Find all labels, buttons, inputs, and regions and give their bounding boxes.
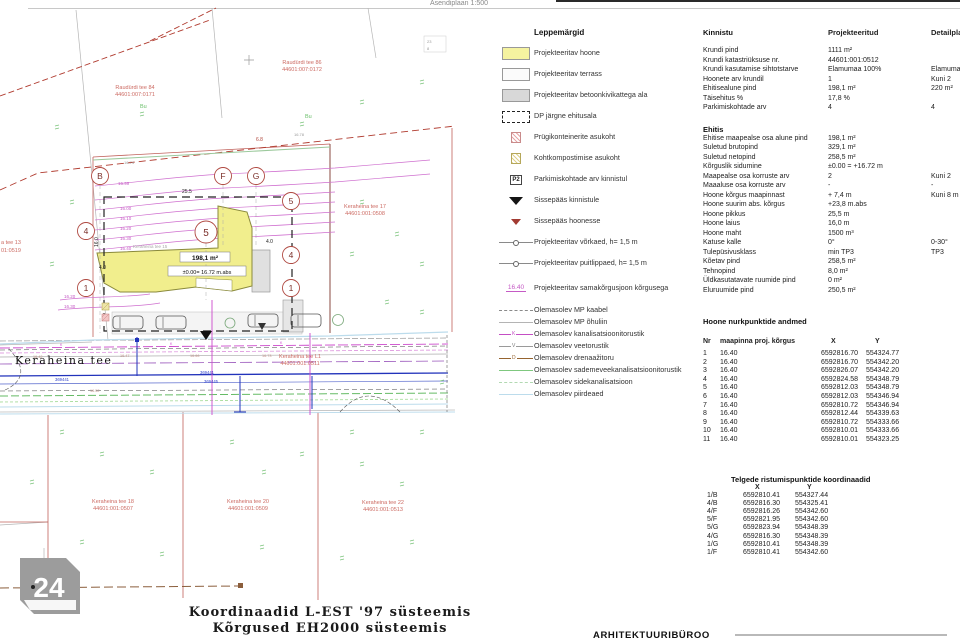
stamp-rule-line [735,634,947,636]
parcel-keraheina13-cad: 01:0519 [1,248,21,254]
kinnistu-header: Kinnistu Projekteeritud Detailplaneering [703,28,960,38]
compost-symbol [511,153,521,164]
building-area-label: 198,1 m² [192,255,219,262]
legend-item: Projekteeritav puitlippaed, h= 1,5 m [498,257,703,270]
sheet-number: 24 [33,572,65,603]
svg-text:K: K [170,342,173,346]
ehitis-row: Hoone pikkus 25,5 m [703,210,960,220]
parcel-keraheina20-cad: 44601:001:0509 [228,506,268,512]
corner-point-row: 8 16.40 6592812.44 554339.63 [703,410,960,419]
street-name-label: Keraheina tee [15,354,112,367]
ehitis-row: Kõetav pind 258,5 m² [703,257,960,267]
axis-label-5-center: 5 [203,228,209,239]
corner-point-row: 7 16.40 6592810.72 554346.94 [703,402,960,411]
legend-item: DP järgne ehitusala [498,110,703,123]
svg-text:4.0: 4.0 [266,239,273,245]
coordinate-system-note: Koordinaadid L-EST '97 süsteemis Kõrguse… [130,605,530,637]
ehitis-row: Hoone kõrgus maapinnast + 7,4 m Kuni 8 m [703,191,960,201]
axis-points-title: Telgede ristumispunktide koordinaadid [731,475,960,484]
axis-point-row: 4/B 6592816.30 554325.41 [703,500,960,508]
corner-point-row: 3 16.40 6592826.07 554342.20 [703,367,960,376]
axis-label-4: 4 [289,250,294,260]
building-entrance-symbol [511,219,521,225]
building-entrance-notch [196,278,232,291]
legend-item: K Olemasolev kanalisatsioonitorustik [498,330,703,339]
ehitis-row: Maapealse osa korruste arv 2 Kuni 2 [703,172,960,182]
parcel-keraheina22-cad: 44601:001:0513 [363,507,403,513]
legend-item: V Olemasolev veetorustik [498,342,703,351]
site-parcel-label: Keraheina tee 15 [133,244,168,249]
svg-text:16.0: 16.0 [94,237,100,247]
svg-text:16.78: 16.78 [294,132,305,137]
ehitis-row: Üldkasutatavate ruumide pind 0 m² [703,276,960,286]
svg-text:369441: 369441 [200,370,215,375]
parcel-keraheina17-name: Keraheina tee 17 [344,204,386,210]
axis-label-5: 5 [289,196,294,206]
corner-point-row: 5 16.40 6592812.03 554348.79 [703,384,960,393]
ehitis-row: Maaaluse osa korruste arv - - [703,181,960,191]
axis-point-row: 5/F 6592821.95 554342.60 [703,516,960,524]
axis-label-1-left: 1 [84,283,89,293]
kinnistu-row: Täisehitus % 17,8 % [703,94,960,104]
drainage-node [238,583,243,588]
property-data-panel: Kinnistu Projekteeritud Detailplaneering… [703,28,960,557]
ehitis-row: Ehitise maapealse osa alune pind 198,1 m… [703,134,960,144]
axis-label-4-left: 4 [84,226,89,236]
legend-item: Projekteeritav hoone [498,47,703,60]
svg-text:16.42: 16.42 [33,355,43,359]
svg-text:16.74: 16.74 [124,160,135,165]
parcel-keraheina17-cad: 44601:001:0508 [345,211,385,217]
sheet-number-badge: 24 [20,558,80,614]
svg-text:369445: 369445 [204,379,219,384]
axis-label-1: 1 [289,283,294,293]
corner-point-row: 4 16.40 6592824.58 554348.79 [703,376,960,385]
parcel-keraheinaL1-cad: 44601:001:0511 [280,361,319,367]
ehitis-row: Hoone suurim abs. kõrgus +23,8 m.abs [703,200,960,210]
parcel-keraheina13-name: a tee 13 [1,240,21,246]
svg-text:16.40: 16.40 [120,246,132,251]
veg-label-bu: Bu [305,114,312,120]
svg-text:K: K [280,341,283,345]
water-line-symbol: V [499,346,533,347]
axis-point-row: 1/F 6592810.41 554342.60 [703,549,960,557]
ehitis-row: Suletud netopind 258,5 m² [703,153,960,163]
svg-text:6.8: 6.8 [256,137,263,143]
telecom-line-symbol [499,382,533,383]
contour-symbol: 16.40 [506,284,526,292]
waste-container-spot [102,314,109,321]
legend-title: Leppemärgid [534,28,703,37]
ehitis-title: Ehitis [703,125,960,134]
parking-count-symbol: P2 [510,175,521,185]
svg-text:16.47: 16.47 [120,354,130,358]
corner-point-row: 9 16.40 6592810.72 554333.66 [703,419,960,428]
building-level-label: ±0.00= 16.72 m.abs [183,270,232,276]
kinnistu-row: Ehitisealune pind 198,1 m² 220 m² [703,84,960,94]
red-dashed-lines [0,8,455,190]
top-right-border-line [556,0,960,2]
legend-item: Olemasolev sademeveekanalisatsioonitorus… [498,366,703,375]
axis-point-row: 1/B 6592810.41 554327.44 [703,492,960,500]
ehitis-row: Kõrguslik sidumine ±0.00 = +16.72 m [703,162,960,172]
svg-text:16.73: 16.73 [262,354,272,358]
architect-office-stamp: ARHITEKTUURIBÜROO [593,630,710,641]
axis-points-header: X Y [703,484,960,492]
drainage-line-symbol: D [499,358,533,359]
legend-item: P2 Parkimiskohtade arv kinnistul [498,173,703,186]
ehitis-row: Eluruumide pind 250,5 m² [703,286,960,296]
axis-label-f: F [220,171,225,181]
coord-line2: Kõrgused EH2000 süsteemis [130,621,530,637]
legend-item: Olemasolev piirdeaed [498,390,703,399]
ehitis-row: Tehnopind 8,0 m² [703,267,960,277]
legend-item: Projekteeritav betoonkivikattega ala [498,89,703,102]
mp-cable-symbol [499,310,533,311]
legend-item: Prügikonteinerite asukoht [498,131,703,144]
parcel-raudurdi84-cad: 44601:007:0171 [115,92,155,98]
terrace-area [252,250,270,292]
svg-text:16.00: 16.00 [120,206,132,211]
kinnistu-row: Hoonete arv krundil 1 Kuni 2 [703,75,960,85]
legend-item: Olemasolev sidekanalisatsioon [498,378,703,387]
veg-label-bu: Bu [140,104,147,110]
svg-text:16.66: 16.66 [190,354,200,358]
terrace-swatch [502,68,530,81]
ehitis-row: Suletud brutopind 329,1 m² [703,143,960,153]
ehitis-row: Katuse kalle 0° 0-30° [703,238,960,248]
axis-point-row: 1/G 6592810.41 554348.39 [703,541,960,549]
legend-item: Olemasolev MP õhuliin [498,318,703,327]
corner-point-row: 1 16.40 6592816.70 554324.77 [703,350,960,359]
kinnistu-row: Parkimiskohtade arv 4 4 [703,103,960,113]
axis-label-b: B [97,171,103,181]
svg-text:16.20: 16.20 [64,294,76,299]
corner-points-header: Nr maapinna proj. kõrgus X Y [703,338,960,350]
svg-text:4.0: 4.0 [99,265,106,271]
concrete-swatch [502,89,530,102]
svg-text:K: K [60,343,63,347]
fence-line-existing [93,147,330,160]
kinnistu-row: Krundi kasutamise sihtotstarve Elamumaa … [703,65,960,75]
parcel-keraheina18-cad: 44601:001:0507 [93,506,133,512]
sewer-line-symbol: K [499,334,533,335]
corner-points-title: Hoone nurkpunktide andmed [703,317,960,326]
survey-cross [244,55,254,65]
build-area-symbol [502,111,530,123]
legend-item: Kohtkompostimise asukoht [498,152,703,165]
svg-text:16.52: 16.52 [90,389,100,393]
compost-spot [102,303,109,310]
ehitis-row: Tulepüsivusklass min TP3 TP3 [703,248,960,258]
corner-point-row: 2 16.40 6592816.70 554342.20 [703,359,960,368]
plot-entrance-symbol [509,197,523,205]
axis-point-row: 4/G 6592816.30 554348.39 [703,533,960,541]
parcel-keraheina22-name: Keraheina tee 22 [362,500,404,506]
coord-line1: Koordinaadid L-EST '97 süsteemis [130,605,530,621]
site-plan-sheet: { "header": { "title": "Asendiplaan 1:50… [0,0,960,640]
svg-text:23: 23 [427,39,432,44]
parcel-raudurdi84-name: Raudürdi tee 84 [115,85,154,91]
parcel-keraheinaL1-name: Keraheina tee L1 [279,354,321,360]
kinnistu-row: Krundi katastriüksuse nr. 44601:001:0512 [703,56,960,66]
mesh-fence-symbol [499,242,533,243]
ehitis-row: Hoone laius 16,0 m [703,219,960,229]
stormwater-line-symbol [499,370,533,371]
corner-note: 23 8 [424,36,446,52]
legend-item: Sissepääs kinnistule [498,194,703,207]
axis-label-g: G [253,171,260,181]
corner-point-row: 6 16.40 6592812.03 554346.94 [703,393,960,402]
svg-text:369441: 369441 [55,377,70,382]
legend-item: Olemasolev MP kaabel [498,306,703,315]
legend-panel: Leppemärgid Projekteeritav hoone Projekt… [498,28,703,402]
axis-point-row: 4/F 6592816.26 554342.60 [703,508,960,516]
legend-item: D Olemasolev drenaažitoru [498,354,703,363]
axis-point-row: 5/G 6592823.94 554348.39 [703,524,960,532]
site-plan-drawing: B F G 5 4 1 4 1 5 198,1 m² ±0.00= 16.72 … [0,0,460,640]
svg-text:16.10: 16.10 [120,216,132,221]
parcel-raudurdi86-name: Raudürdi tee 86 [282,60,321,66]
legend-item: Sissepääs hoonesse [498,215,703,228]
tree-symbol [333,315,344,326]
svg-text:16.30: 16.30 [120,236,132,241]
ehitis-row: Hoone maht 1500 m³ [703,229,960,239]
parcel-keraheina18-name: Keraheina tee 18 [92,499,134,505]
mp-overhead-symbol [499,322,533,323]
wood-fence-symbol [499,263,533,264]
svg-text:16.30: 16.30 [64,304,76,309]
corner-point-row: 10 16.40 6592810.01 554333.66 [703,427,960,436]
parcel-keraheina20-name: Keraheina tee 20 [227,499,269,505]
legend-item: Projekteeritav võrkaed, h= 1,5 m [498,236,703,249]
legend-item: Projekteeritav terrass [498,68,703,81]
existing-fence-symbol [499,394,533,395]
legend-item: 16.40 Projekteeritav samakõrgusjoon kõrg… [498,278,703,298]
proposed-building-swatch [502,47,530,60]
svg-text:16.20: 16.20 [120,226,132,231]
parcel-raudurdi86-cad: 44601:007:0172 [282,67,322,73]
waste-container-symbol [511,132,521,143]
kinnistu-row: Krundi pind 1111 m² [703,46,960,56]
corner-point-row: 11 16.40 6592810.01 554323.25 [703,436,960,445]
svg-text:15.99: 15.99 [118,181,130,186]
svg-text:25.5: 25.5 [182,189,192,195]
